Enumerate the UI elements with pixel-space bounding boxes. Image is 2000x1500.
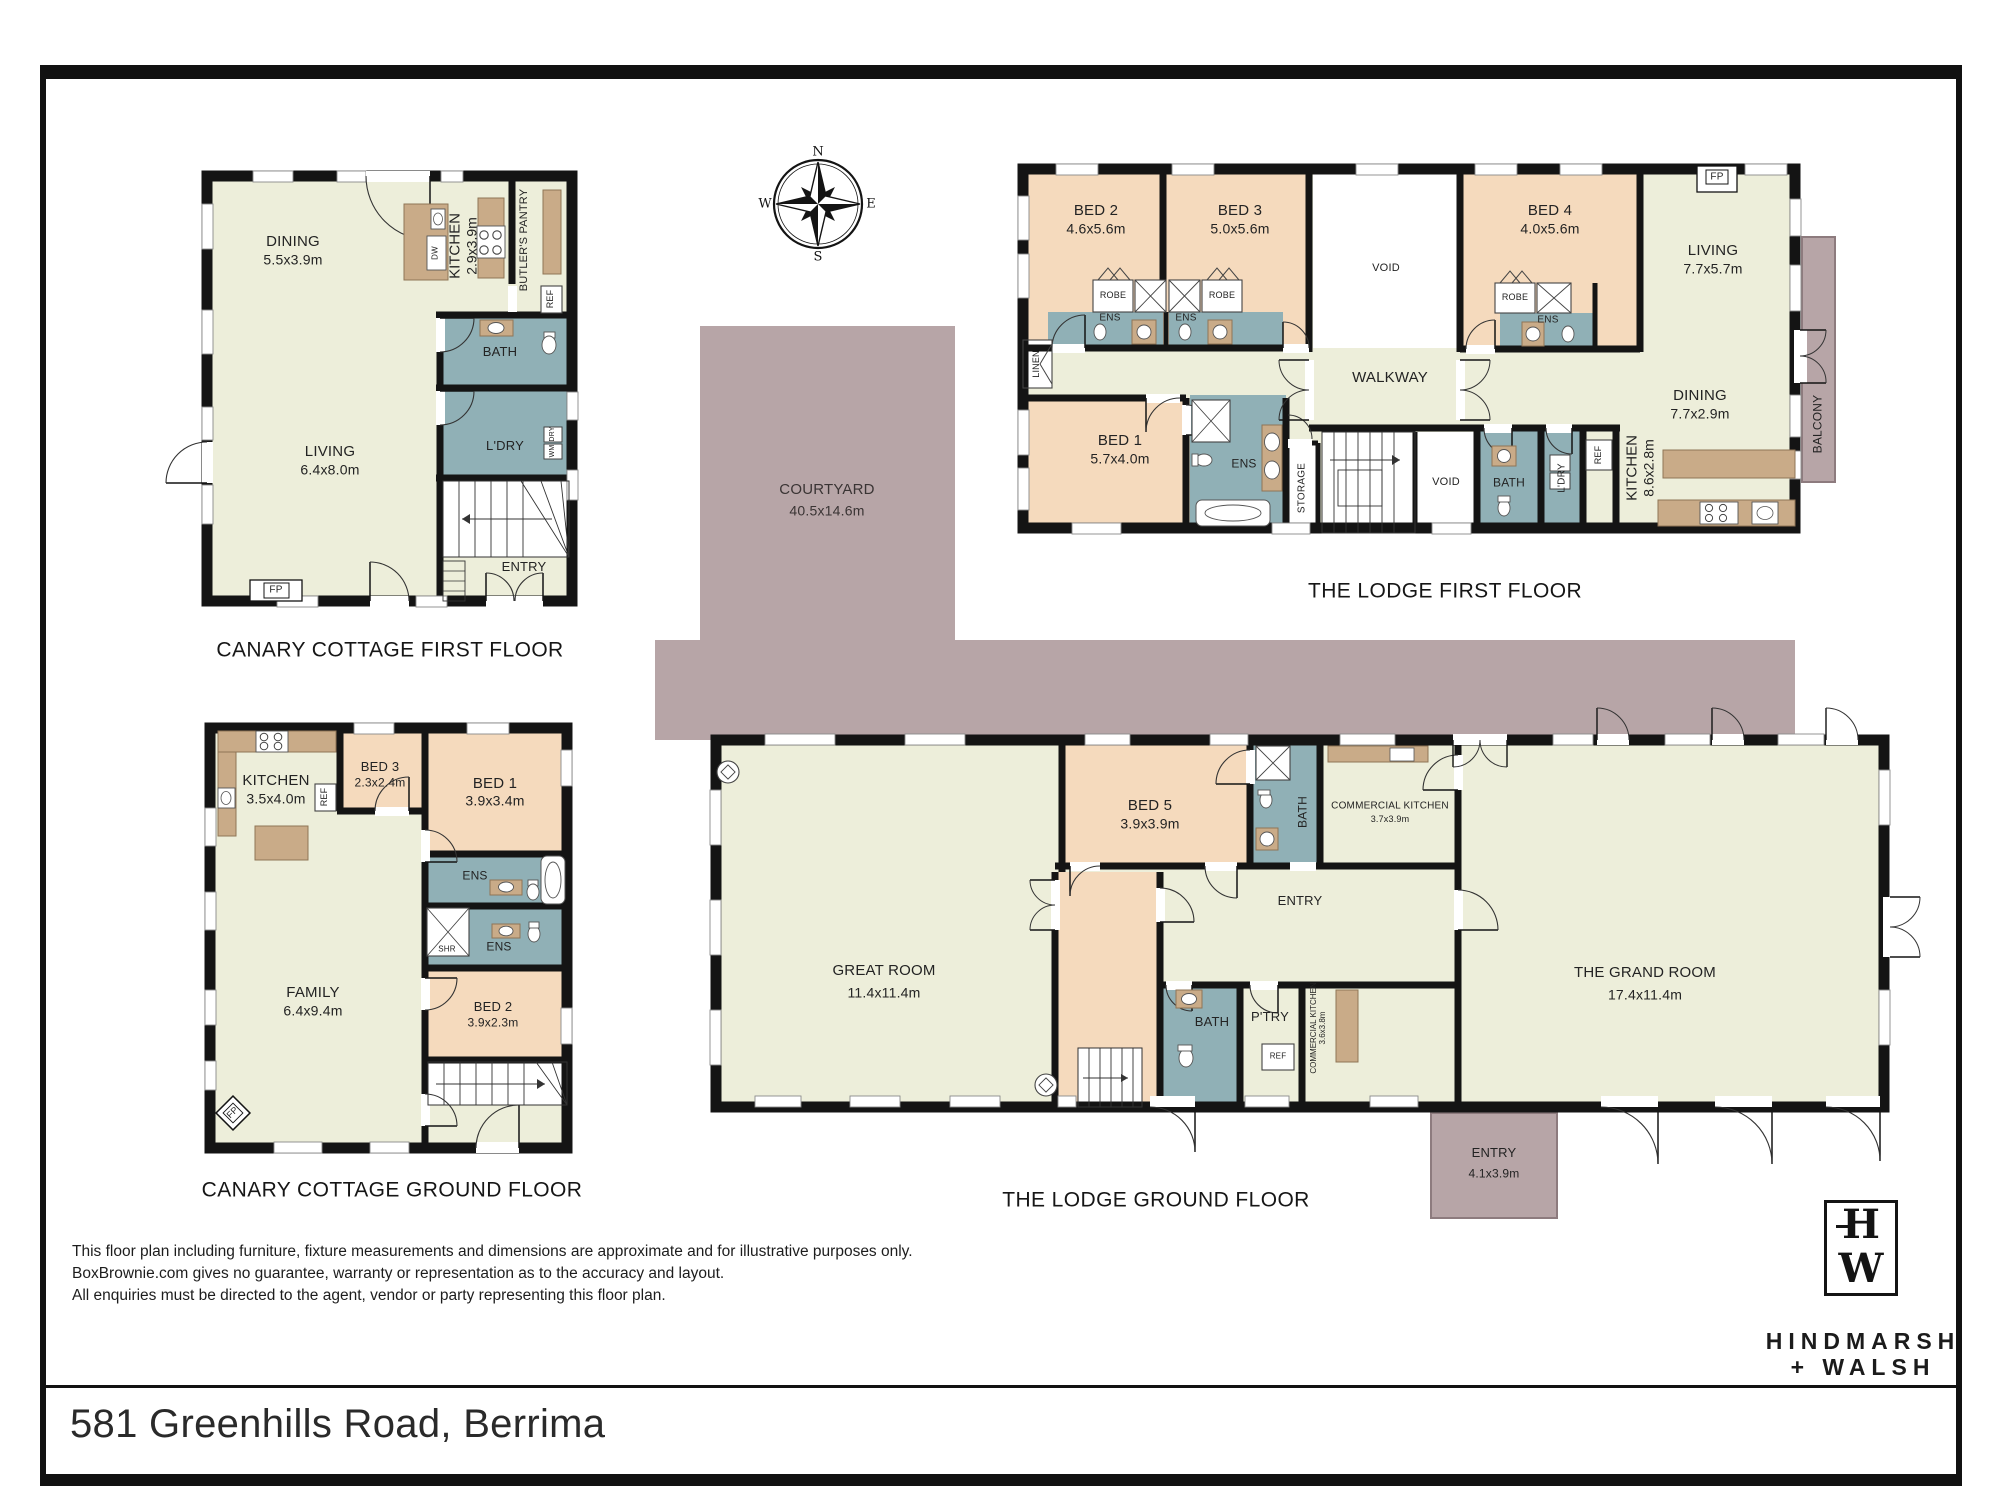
courtyard-dims: 40.5x14.6m xyxy=(789,503,864,518)
lgf-stairs-icon xyxy=(1078,1048,1142,1107)
cc-gf-kitchen-dims: 3.5x4.0m xyxy=(246,791,305,806)
cc-ff-dining-dims: 5.5x3.9m xyxy=(263,252,322,267)
lff-ens-b-label: ENS xyxy=(1175,313,1196,324)
cc-ff-kitchen-name: KITCHEN xyxy=(446,213,463,279)
lgf-ref-label: REF xyxy=(1270,1053,1287,1062)
lgf-bath-upper-label: BATH xyxy=(1296,796,1309,828)
lff-kitchen-name: KITCHEN xyxy=(1623,435,1640,501)
lff-bed1-label: BED 1 xyxy=(1098,433,1142,450)
lff-ens-c-label: ENS xyxy=(1537,315,1558,326)
lff-robe-c-label: ROBE xyxy=(1502,293,1528,303)
compass-east-label: E xyxy=(866,197,876,212)
cc-ff-kitchen-island xyxy=(404,204,448,280)
cc-gf-kitchen-label: KITCHEN xyxy=(242,773,309,790)
lgf-great-room-label: GREAT ROOM xyxy=(832,963,935,980)
compass-west-label: W xyxy=(758,197,771,212)
agency-logo: H W xyxy=(1824,1200,1898,1296)
cc-gf-bed2-label: BED 2 xyxy=(474,1000,513,1014)
lff-balcony-label: BALCONY xyxy=(1811,395,1824,454)
lgf-commercial-kitchen-upper-fixtures xyxy=(1328,746,1428,762)
lff-title: THE LODGE FIRST FLOOR xyxy=(1308,579,1582,602)
lgf-entry-label: ENTRY xyxy=(1278,894,1323,908)
lgf-ck-lower-name: COMMERCIAL KITCHEN xyxy=(1309,982,1318,1073)
compass-icon xyxy=(774,160,862,248)
property-address: 581 Greenhills Road, Berrima xyxy=(70,1402,605,1447)
compass-south-label: S xyxy=(814,250,823,265)
lff-bed4-dims: 4.0x5.6m xyxy=(1520,221,1579,236)
cc-ff-entry-label: ENTRY xyxy=(502,560,547,574)
lff-bed2-dims: 4.6x5.6m xyxy=(1066,221,1125,236)
lgf-title: THE LODGE GROUND FLOOR xyxy=(1002,1188,1310,1211)
lgf-grand-room-label: THE GRAND ROOM xyxy=(1574,965,1716,982)
cc-ff-kitchen-dims: 2.9x3.9m xyxy=(464,213,480,279)
lff-living-dims: 7.7x5.7m xyxy=(1683,261,1742,276)
lff-linen-label: LINEN xyxy=(1032,350,1042,378)
cc-gf-bed1-dims: 3.9x3.4m xyxy=(465,793,524,808)
cc-gf-family-dims: 6.4x9.4m xyxy=(283,1003,342,1018)
lff-bath-label: BATH xyxy=(1493,476,1525,489)
cc-ff-dining-label: DINING xyxy=(266,234,320,251)
lff-living-label: LIVING xyxy=(1688,243,1738,260)
compass-north-label: N xyxy=(812,145,823,160)
cc-gf-ens-b-label: ENS xyxy=(486,940,511,953)
lgf-fireplace-icons xyxy=(717,761,1057,1096)
lff-ref-label: REF xyxy=(1594,446,1604,465)
lff-void-lower-label: VOID xyxy=(1432,476,1460,488)
lgf-ck-lower-dims: 3.6x3.8m xyxy=(1318,982,1327,1073)
logo-h-serif-bar xyxy=(1836,1225,1849,1228)
cc-ff-ref-label: REF xyxy=(546,290,556,309)
cc-ff-dw-label: DW xyxy=(432,246,441,260)
floorplan-sheet: DINING 5.5x3.9m KITCHEN2.9x3.9m BUTLER'S… xyxy=(0,0,2000,1500)
lff-walkway-label: WALKWAY xyxy=(1352,370,1428,387)
cc-ff-kitchen-label: KITCHEN2.9x3.9m xyxy=(446,213,479,279)
lff-bed4-label: BED 4 xyxy=(1528,203,1572,220)
lgf-bath-upper-fixtures xyxy=(1256,746,1290,850)
lgf-pantry-label: P'TRY xyxy=(1251,1010,1289,1024)
cc-ff-fp-label: FP xyxy=(269,585,282,596)
disclaimer-line-3: All enquiries must be directed to the ag… xyxy=(72,1287,666,1305)
lff-robe-b-label: ROBE xyxy=(1209,291,1235,301)
lff-kitchen-fixtures xyxy=(1658,450,1795,526)
lff-kitchen-label: KITCHEN8.6x2.8m xyxy=(1623,435,1656,501)
agency-name-line-2: + WALSH xyxy=(1703,1354,2000,1381)
cc-gf-shr-label: SHR xyxy=(438,946,456,955)
cc-ff-stove-icon xyxy=(477,198,505,278)
lgf-bath-lower-label: BATH xyxy=(1195,1015,1230,1029)
cc-gf-stairs-icon xyxy=(428,1062,567,1105)
lgf-ck-upper-label: COMMERCIAL KITCHEN xyxy=(1331,801,1449,812)
lff-bed1-dims: 5.7x4.0m xyxy=(1090,451,1149,466)
disclaimer-line-1: This floor plan including furniture, fix… xyxy=(72,1243,913,1261)
cc-gf-ref-label: REF xyxy=(320,788,330,807)
lff-storage-label: STORAGE xyxy=(1297,463,1308,513)
lgf-bed5-label: BED 5 xyxy=(1128,798,1172,815)
lff-stairs-icon xyxy=(1322,432,1415,533)
lff-kitchen-dims: 8.6x2.8m xyxy=(1641,435,1657,501)
cc-gf-title: CANARY COTTAGE GROUND FLOOR xyxy=(202,1178,583,1201)
lff-dining-label: DINING xyxy=(1673,388,1727,405)
agency-logo-w: W xyxy=(1827,1247,1895,1291)
cc-gf-bed3-dims: 2.3x2.4m xyxy=(355,776,406,789)
cc-ff-pantry-counter xyxy=(543,190,561,274)
lff-bed2-label: BED 2 xyxy=(1074,203,1118,220)
cc-ff-living-label: LIVING xyxy=(305,444,355,461)
cc-gf-bed1-label: BED 1 xyxy=(473,776,517,793)
lgf-entry-porch-label: ENTRY xyxy=(1472,1146,1517,1160)
cc-gf-family-label: FAMILY xyxy=(286,985,339,1002)
cc-gf-ens-a-label: ENS xyxy=(462,869,487,882)
lff-dining-dims: 7.7x2.9m xyxy=(1670,406,1729,421)
cc-ff-title: CANARY COTTAGE FIRST FLOOR xyxy=(216,638,563,661)
lff-bed3-label: BED 3 xyxy=(1218,203,1262,220)
agency-name-line-1: HINDMARSH xyxy=(1703,1328,2000,1355)
lgf-entry-porch-dims: 4.1x3.9m xyxy=(1469,1167,1520,1180)
lgf-grand-room-dims: 17.4x11.4m xyxy=(1608,987,1682,1002)
lgf-great-room-dims: 11.4x11.4m xyxy=(847,985,920,1000)
cc-gf-bed2-dims: 3.9x2.3m xyxy=(468,1016,519,1029)
cc-ff-stairs-icon xyxy=(443,481,569,601)
lff-ens-bed1-label: ENS xyxy=(1231,457,1256,470)
lgf-ck-upper-dims: 3.7x3.9m xyxy=(1371,815,1410,825)
cc-ff-butlers-pantry-label: BUTLER'S PANTRY xyxy=(518,189,530,292)
cc-ff-laundry-label: L'DRY xyxy=(486,439,524,453)
cc-ff-living-dims: 6.4x8.0m xyxy=(300,462,359,477)
lgf-bed5-dims: 3.9x3.9m xyxy=(1120,816,1179,831)
cc-ff-bath-label: BATH xyxy=(483,345,518,359)
cc-ff-dry-label: DRY xyxy=(549,426,557,441)
cc-gf-bed3-label: BED 3 xyxy=(361,760,400,774)
lff-laundry-label: L'DRY xyxy=(1557,463,1568,492)
disclaimer-line-2: BoxBrownie.com gives no guarantee, warra… xyxy=(72,1265,724,1283)
lgf-ck-lower-label: COMMERCIAL KITCHEN3.6x3.8m xyxy=(1309,982,1327,1073)
lff-fp-label: FP xyxy=(1710,172,1723,183)
lff-robe-a-label: ROBE xyxy=(1100,291,1126,301)
lff-bed3-dims: 5.0x5.6m xyxy=(1210,221,1269,236)
lff-ens-a-label: ENS xyxy=(1099,313,1120,324)
courtyard-label: COURTYARD xyxy=(779,482,874,499)
lff-void-upper-label: VOID xyxy=(1372,262,1400,274)
cc-ff-wm-label: WM xyxy=(549,445,557,458)
